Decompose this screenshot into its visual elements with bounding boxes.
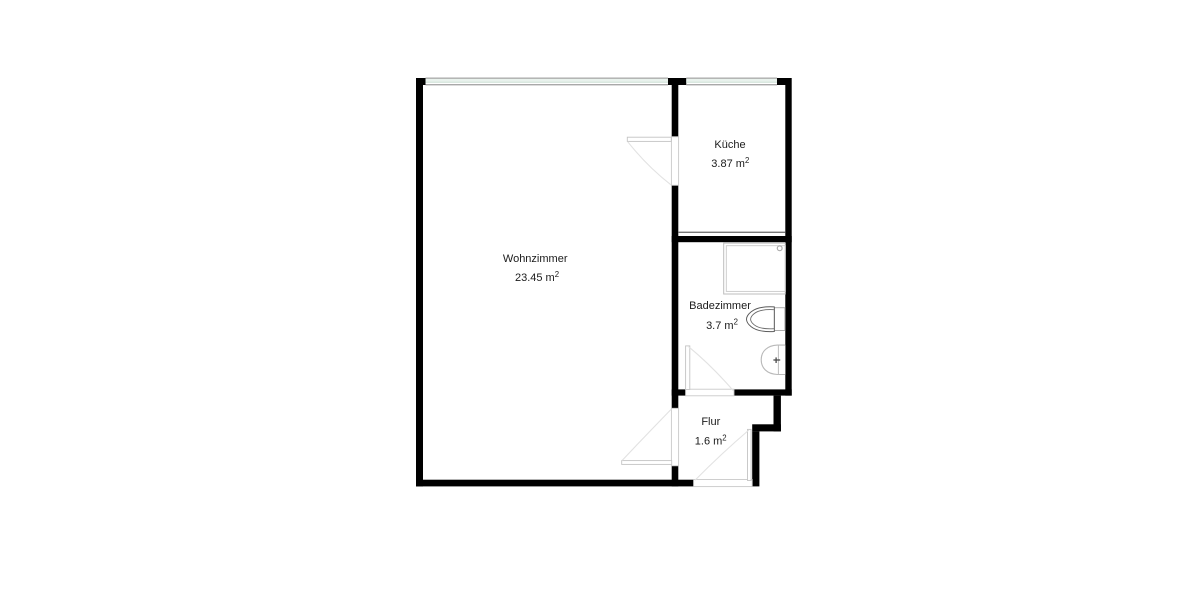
- svg-text:Badezimmer: Badezimmer: [689, 300, 751, 312]
- svg-text:3.87 m2: 3.87 m2: [711, 156, 749, 170]
- svg-text:Wohnzimmer: Wohnzimmer: [503, 253, 568, 265]
- svg-text:Flur: Flur: [701, 416, 720, 428]
- svg-text:23.45 m2: 23.45 m2: [515, 270, 559, 284]
- svg-text:3.7 m2: 3.7 m2: [706, 318, 738, 332]
- svg-text:1.6 m2: 1.6 m2: [695, 433, 727, 447]
- svg-text:Küche: Küche: [714, 139, 745, 151]
